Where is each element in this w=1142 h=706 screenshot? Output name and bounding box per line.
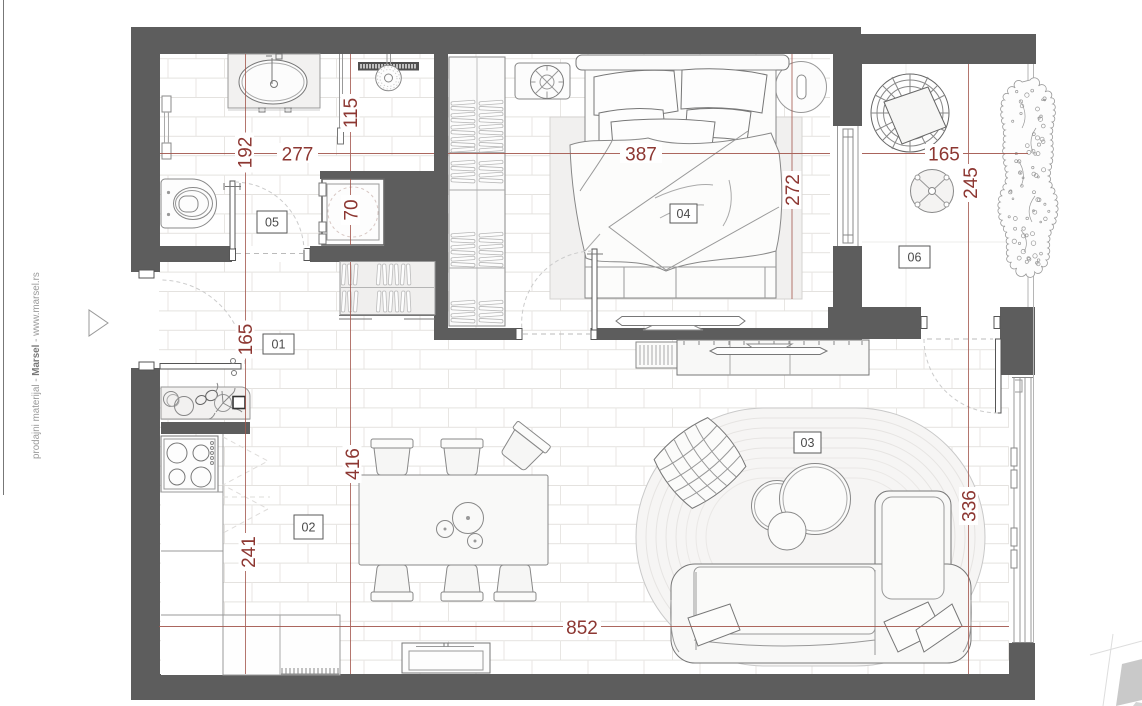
svg-text:02: 02 (302, 521, 316, 535)
svg-text:387: 387 (625, 145, 657, 166)
svg-text:06: 06 (908, 251, 922, 265)
svg-text:336: 336 (960, 490, 981, 522)
svg-text:165: 165 (236, 324, 257, 356)
svg-text:272: 272 (783, 174, 804, 206)
svg-text:70: 70 (342, 199, 363, 220)
svg-text:115: 115 (341, 98, 362, 128)
svg-text:05: 05 (265, 216, 279, 230)
svg-text:277: 277 (282, 145, 314, 166)
svg-text:04: 04 (677, 207, 691, 221)
svg-text:852: 852 (566, 618, 598, 639)
svg-text:03: 03 (801, 436, 815, 450)
svg-text:01: 01 (272, 338, 286, 352)
svg-text:245: 245 (961, 167, 982, 199)
svg-text:165: 165 (928, 145, 960, 166)
svg-text:416: 416 (343, 448, 364, 480)
svg-text:192: 192 (236, 137, 257, 169)
svg-text:241: 241 (239, 536, 260, 568)
svg-text:prodajni materijal - Marsel -: prodajni materijal - Marsel - www.marsel… (31, 272, 42, 459)
